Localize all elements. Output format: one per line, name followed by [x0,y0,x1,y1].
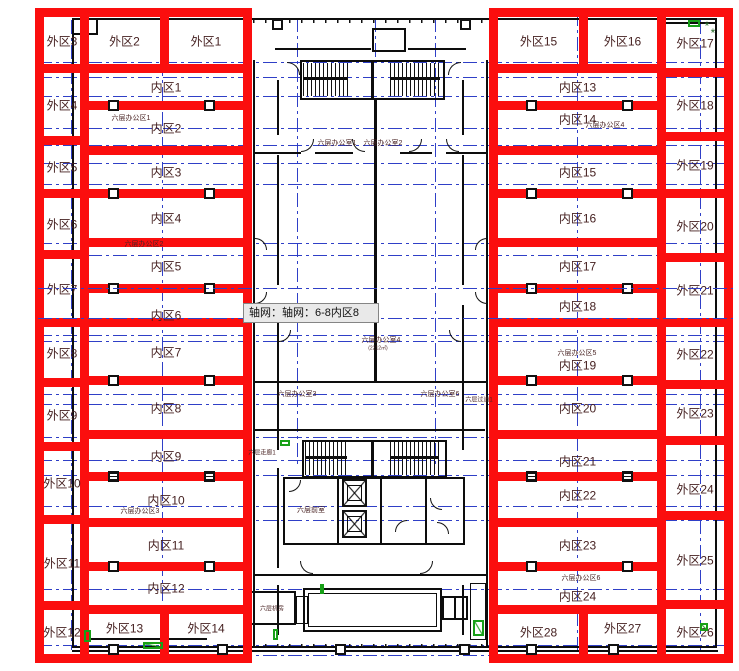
column-marker [204,375,215,386]
zone-label: 外区8 [47,344,78,361]
column-marker [108,471,119,482]
zone-label: 内区24 [559,588,596,605]
zone-label: 外区16 [604,32,641,49]
wall-bar [253,381,487,383]
zone-label: 内区21 [559,452,596,469]
zone-label: 外区9 [47,406,78,423]
plan-text: 六层过道1 [465,395,492,404]
wall-bar [408,48,466,50]
green-marker [273,629,278,640]
zone-label: 内区23 [559,536,596,553]
column-marker [217,644,228,655]
zone-label: 外区22 [676,345,713,362]
zone-label: 内区15 [559,164,596,181]
zone-label: 外区14 [187,620,224,637]
zone-label: 外区28 [520,624,557,641]
zone-label: 外区15 [520,32,557,49]
zone-label: 外区18 [676,96,713,113]
zone-label: 内区13 [559,79,596,96]
wall-bar [283,543,465,545]
column-marker [108,100,119,111]
wall-bar [277,155,279,285]
column-marker [204,561,215,572]
plan-text: 六层办公区1 [112,113,151,123]
zone-外区24[interactable] [657,436,733,520]
wall-bar [462,155,464,285]
axis-tooltip: 轴网：轴网：6-8内区8 [243,303,379,323]
wall-bar [253,60,255,648]
zone-label: 外区13 [106,620,143,637]
column-marker [460,19,471,30]
green-marker [320,584,324,594]
wall-bar [277,80,279,135]
axis-line-h [38,288,733,289]
zone-label: 内区18 [559,297,596,314]
green-marker [700,623,708,631]
zone-label: 外区4 [47,96,78,113]
green-marker [688,20,700,27]
plan-text: 六层办公区2 [125,239,164,249]
stair-hatch [303,63,348,96]
green-marker [84,630,91,642]
zone-label: 外区6 [47,216,78,233]
zone-label: 内区7 [151,343,182,360]
zone-label: 内区1 [151,79,182,96]
column-marker [526,471,537,482]
column-marker [622,471,633,482]
wall-bar [315,152,353,154]
column-marker [622,100,633,111]
plan-text: 六层办公室4 [362,335,401,345]
green-marker [280,440,290,446]
column-marker [204,188,215,199]
column-marker [526,561,537,572]
zone-label: 内区14 [559,111,596,128]
zone-label: 外区3 [47,32,78,49]
zone-label: 内区19 [559,356,596,373]
column-marker [526,100,537,111]
column-marker [204,100,215,111]
plan-text: 六层办公室3 [278,389,317,399]
column-marker [108,561,119,572]
zone-label: 外区26 [676,623,713,640]
plan-text: 六层办公室1 [318,138,357,148]
wall-bar [425,477,427,545]
column-marker [526,644,537,655]
wall-bar [400,152,432,154]
elevator-shaft [342,479,367,507]
plan-text: 六层走廊1 [248,448,275,457]
zone-label: 内区11 [148,536,184,553]
plan-text: 六层机房 [260,604,284,613]
plan-text: 六层前室 [297,505,325,515]
stair-hatch [390,63,440,96]
column-marker [459,644,470,655]
stair-hatch [305,442,347,475]
wall-bar [462,80,464,135]
zone-label: 外区11 [44,554,80,571]
wall-bar [253,574,487,576]
zone-label: 内区5 [151,257,182,274]
wall-bar [255,429,485,431]
zone-label: 外区20 [676,217,713,234]
zone-label: 内区8 [151,399,182,416]
plan-text: 六层办公室2 [364,138,403,148]
wall-bar [446,152,486,154]
wall-bar [283,477,285,545]
zone-label: 外区17 [676,34,713,51]
column-marker [622,188,633,199]
column-marker [335,644,346,655]
wall-bar [486,60,488,648]
zone-label: 外区24 [676,481,713,498]
zone-label: 内区22 [559,486,596,503]
column-marker [526,375,537,386]
green-marker [473,620,484,636]
column-marker [272,19,283,30]
zone-label: 外区12 [43,624,80,641]
wall-hatch-ticks [253,644,487,648]
column-marker [108,644,119,655]
wall-bar [255,152,301,154]
room-box [296,596,308,624]
cad-floorplan-viewer: 轴网：轴网：6-8内区8 外区3外区4外区5外区6外区7外区8外区9外区10外区… [0,0,739,671]
column-marker [108,375,119,386]
zone-label: 外区21 [676,282,713,299]
room-box [372,28,406,52]
stair-hatch [390,442,439,475]
axis-line-h [38,318,733,319]
room-box [442,596,468,620]
zone-label: 外区5 [47,159,78,176]
zone-label: 内区6 [151,306,182,323]
column-marker [526,188,537,199]
zone-label: 外区27 [604,620,641,637]
zone-label: 内区16 [559,210,596,227]
zone-label: 内区12 [147,580,184,597]
column-marker [622,375,633,386]
zone-label: 内区3 [151,164,182,181]
zone-label: 内区4 [151,210,182,227]
plan-text: 六层办公区6 [562,573,601,583]
wall-bar [463,477,465,545]
zone-label: 外区19 [676,157,713,174]
wall-bar [337,477,339,545]
column-marker [204,471,215,482]
zone-label: 外区10 [43,475,80,492]
zone-label: 外区23 [676,404,713,421]
wall-bar [380,477,382,545]
elevator-shaft [342,510,367,538]
plan-text: (2212㎡) [368,345,387,352]
green-marker [143,642,163,649]
column-marker [622,561,633,572]
wall-bar [277,468,279,568]
column-marker [108,188,119,199]
zone-label: 外区2 [109,32,140,49]
wall-hatch-ticks [253,19,487,23]
column-marker [608,644,619,655]
zone-label: 内区20 [559,399,596,416]
zone-label: 内区17 [559,257,596,274]
room-box [308,593,437,627]
zone-label: 内区10 [147,491,184,508]
zone-label: 内区9 [151,447,182,464]
wall-bar [275,48,371,50]
zone-label: 外区1 [191,32,222,49]
zone-label: 外区25 [676,552,713,569]
plan-text: 六层办公室6 [421,389,460,399]
zone-label: 内区2 [151,120,182,137]
plan-text: * [705,19,710,33]
